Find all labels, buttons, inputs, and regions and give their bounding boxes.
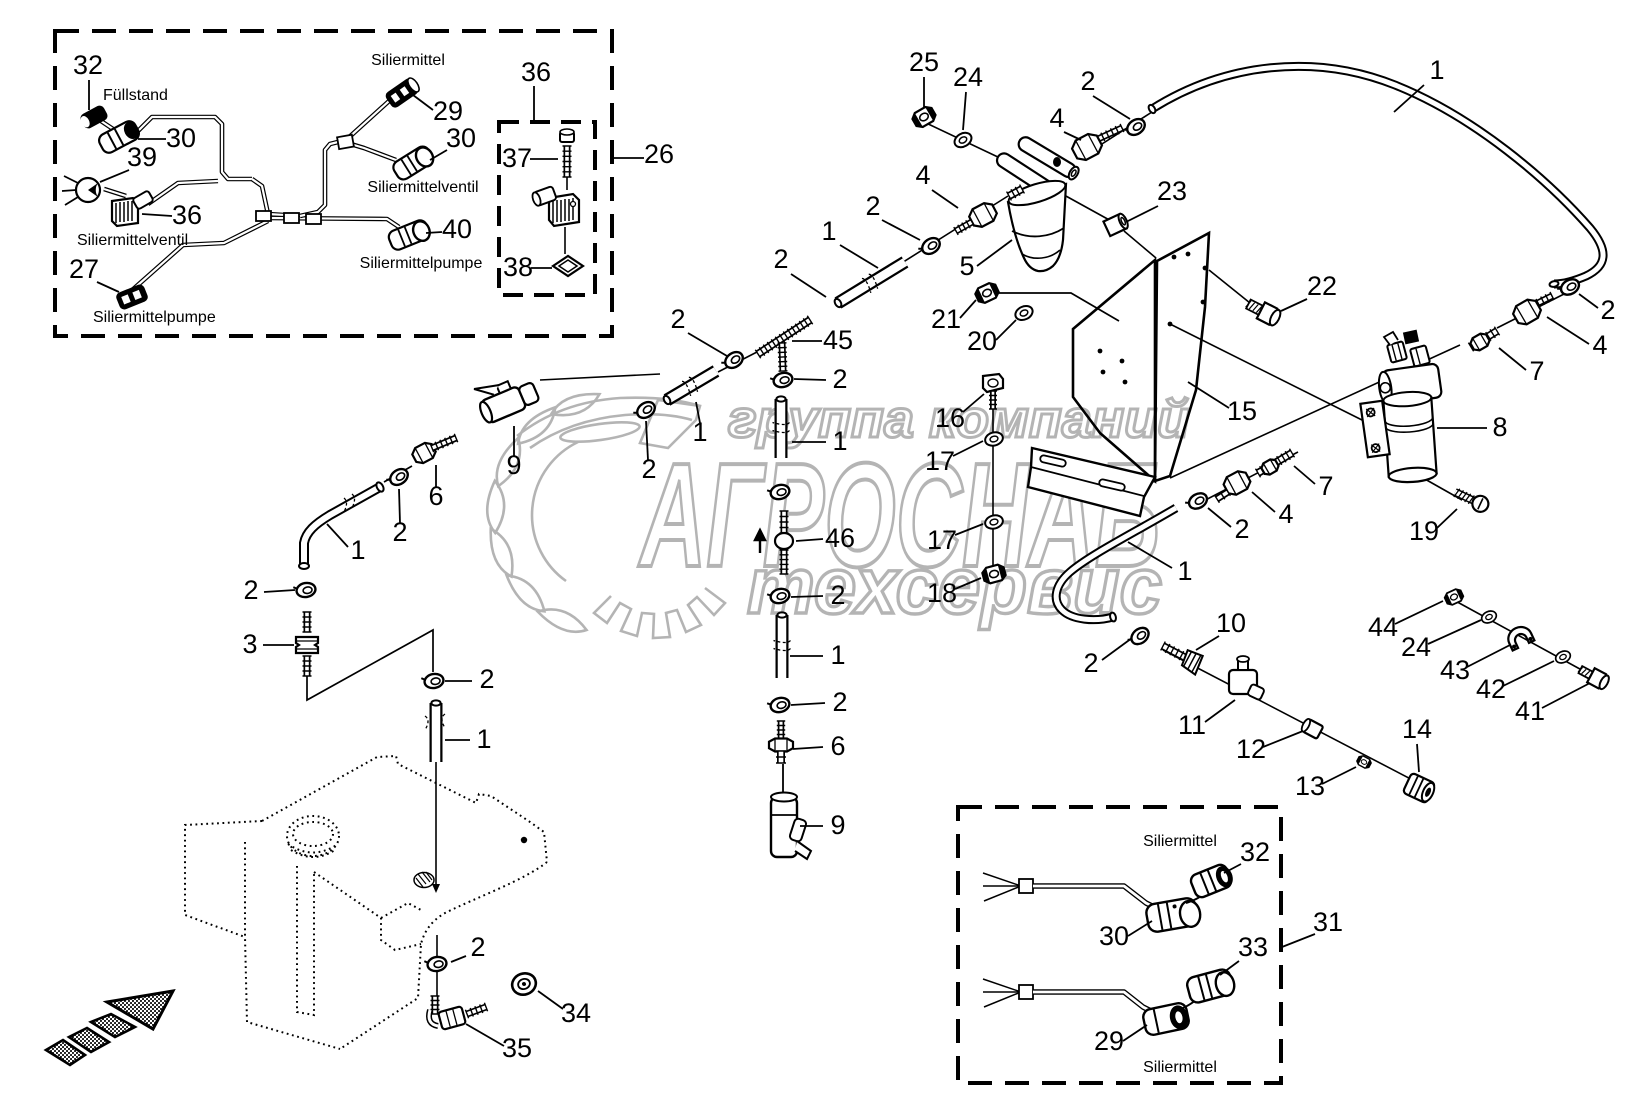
svg-text:32: 32 [1240, 837, 1270, 867]
svg-text:10: 10 [1216, 608, 1246, 638]
svg-text:6: 6 [830, 731, 845, 761]
svg-text:1: 1 [832, 426, 847, 456]
svg-text:29: 29 [433, 96, 463, 126]
svg-text:37: 37 [502, 143, 532, 173]
svg-text:30: 30 [446, 123, 476, 153]
svg-text:Siliermittel: Siliermittel [1143, 833, 1217, 850]
svg-text:2: 2 [832, 687, 847, 717]
svg-text:2: 2 [641, 454, 656, 484]
svg-text:Siliermittel: Siliermittel [371, 52, 445, 69]
svg-text:30: 30 [166, 123, 196, 153]
svg-text:4: 4 [1278, 499, 1293, 529]
svg-text:11: 11 [1178, 710, 1206, 740]
svg-text:33: 33 [1238, 932, 1268, 962]
svg-text:4: 4 [1049, 103, 1064, 133]
svg-text:Siliermittelpumpe: Siliermittelpumpe [360, 255, 483, 272]
svg-text:Siliermittelpumpe: Siliermittelpumpe [93, 309, 216, 326]
svg-text:19: 19 [1409, 516, 1439, 546]
svg-text:23: 23 [1157, 176, 1187, 206]
svg-text:34: 34 [561, 998, 591, 1028]
svg-text:27: 27 [69, 254, 99, 284]
svg-text:1: 1 [1177, 556, 1192, 586]
svg-text:2: 2 [479, 664, 494, 694]
svg-text:24: 24 [1401, 632, 1431, 662]
svg-text:31: 31 [1313, 907, 1343, 937]
svg-text:14: 14 [1402, 714, 1432, 744]
svg-text:26: 26 [644, 139, 674, 169]
svg-text:1: 1 [350, 535, 365, 565]
svg-text:25: 25 [909, 47, 939, 77]
svg-text:Siliermittelventil: Siliermittelventil [367, 179, 478, 196]
svg-text:21: 21 [931, 304, 961, 334]
svg-text:39: 39 [127, 142, 157, 172]
svg-text:1: 1 [476, 724, 491, 754]
svg-text:17: 17 [927, 525, 957, 555]
svg-text:1: 1 [821, 216, 836, 246]
svg-text:35: 35 [502, 1033, 532, 1063]
svg-text:2: 2 [832, 364, 847, 394]
svg-text:1: 1 [1429, 55, 1444, 85]
svg-text:2: 2 [1083, 648, 1098, 678]
svg-text:18: 18 [927, 578, 957, 608]
svg-text:30: 30 [1099, 921, 1129, 951]
svg-text:29: 29 [1094, 1026, 1124, 1056]
svg-text:20: 20 [967, 326, 997, 356]
svg-text:40: 40 [442, 214, 472, 244]
svg-text:4: 4 [915, 160, 930, 190]
svg-text:24: 24 [953, 62, 983, 92]
svg-text:4: 4 [1592, 330, 1607, 360]
svg-text:38: 38 [503, 252, 533, 282]
svg-text:42: 42 [1476, 674, 1506, 704]
svg-text:2: 2 [470, 932, 485, 962]
svg-text:2: 2 [830, 580, 845, 610]
svg-text:43: 43 [1440, 655, 1470, 685]
svg-text:7: 7 [1318, 471, 1333, 501]
svg-text:15: 15 [1227, 396, 1257, 426]
svg-text:12: 12 [1236, 734, 1266, 764]
svg-text:Füllstand: Füllstand [103, 87, 168, 104]
svg-text:5: 5 [959, 251, 974, 281]
svg-text:2: 2 [865, 191, 880, 221]
svg-text:2: 2 [1080, 66, 1095, 96]
svg-text:46: 46 [825, 523, 855, 553]
svg-text:2: 2 [1234, 514, 1249, 544]
svg-text:2: 2 [1600, 295, 1615, 325]
svg-text:9: 9 [830, 810, 845, 840]
svg-text:2: 2 [670, 304, 685, 334]
svg-text:41: 41 [1515, 696, 1545, 726]
svg-text:13: 13 [1295, 771, 1325, 801]
svg-text:16: 16 [935, 403, 965, 433]
svg-text:32: 32 [73, 50, 103, 80]
svg-text:Siliermittelventil: Siliermittelventil [77, 232, 188, 249]
svg-text:8: 8 [1492, 412, 1507, 442]
svg-text:17: 17 [925, 446, 955, 476]
svg-text:22: 22 [1307, 271, 1337, 301]
svg-text:3: 3 [242, 629, 257, 659]
svg-text:36: 36 [172, 200, 202, 230]
svg-text:Siliermittel: Siliermittel [1143, 1059, 1217, 1076]
svg-text:44: 44 [1368, 612, 1398, 642]
svg-text:2: 2 [243, 575, 258, 605]
svg-text:1: 1 [830, 640, 845, 670]
svg-text:7: 7 [1529, 356, 1544, 386]
svg-text:36: 36 [521, 57, 551, 87]
svg-text:2: 2 [773, 244, 788, 274]
svg-text:45: 45 [823, 325, 853, 355]
